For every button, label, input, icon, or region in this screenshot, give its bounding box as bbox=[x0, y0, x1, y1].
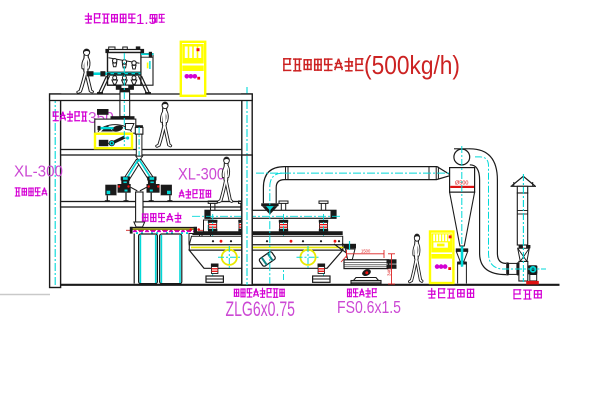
svg-text:1.5: 1.5 bbox=[136, 11, 157, 28]
svg-text:ZLG6x0.75: ZLG6x0.75 bbox=[226, 298, 296, 321]
svg-text:(500kg/h): (500kg/h) bbox=[364, 50, 460, 80]
svg-text:XL-300: XL-300 bbox=[14, 164, 63, 181]
svg-text:1500: 1500 bbox=[361, 249, 371, 254]
svg-text:340: 340 bbox=[386, 268, 391, 276]
svg-text:XL-300: XL-300 bbox=[178, 166, 225, 184]
svg-text:FS0.6x1.5: FS0.6x1.5 bbox=[337, 297, 401, 317]
